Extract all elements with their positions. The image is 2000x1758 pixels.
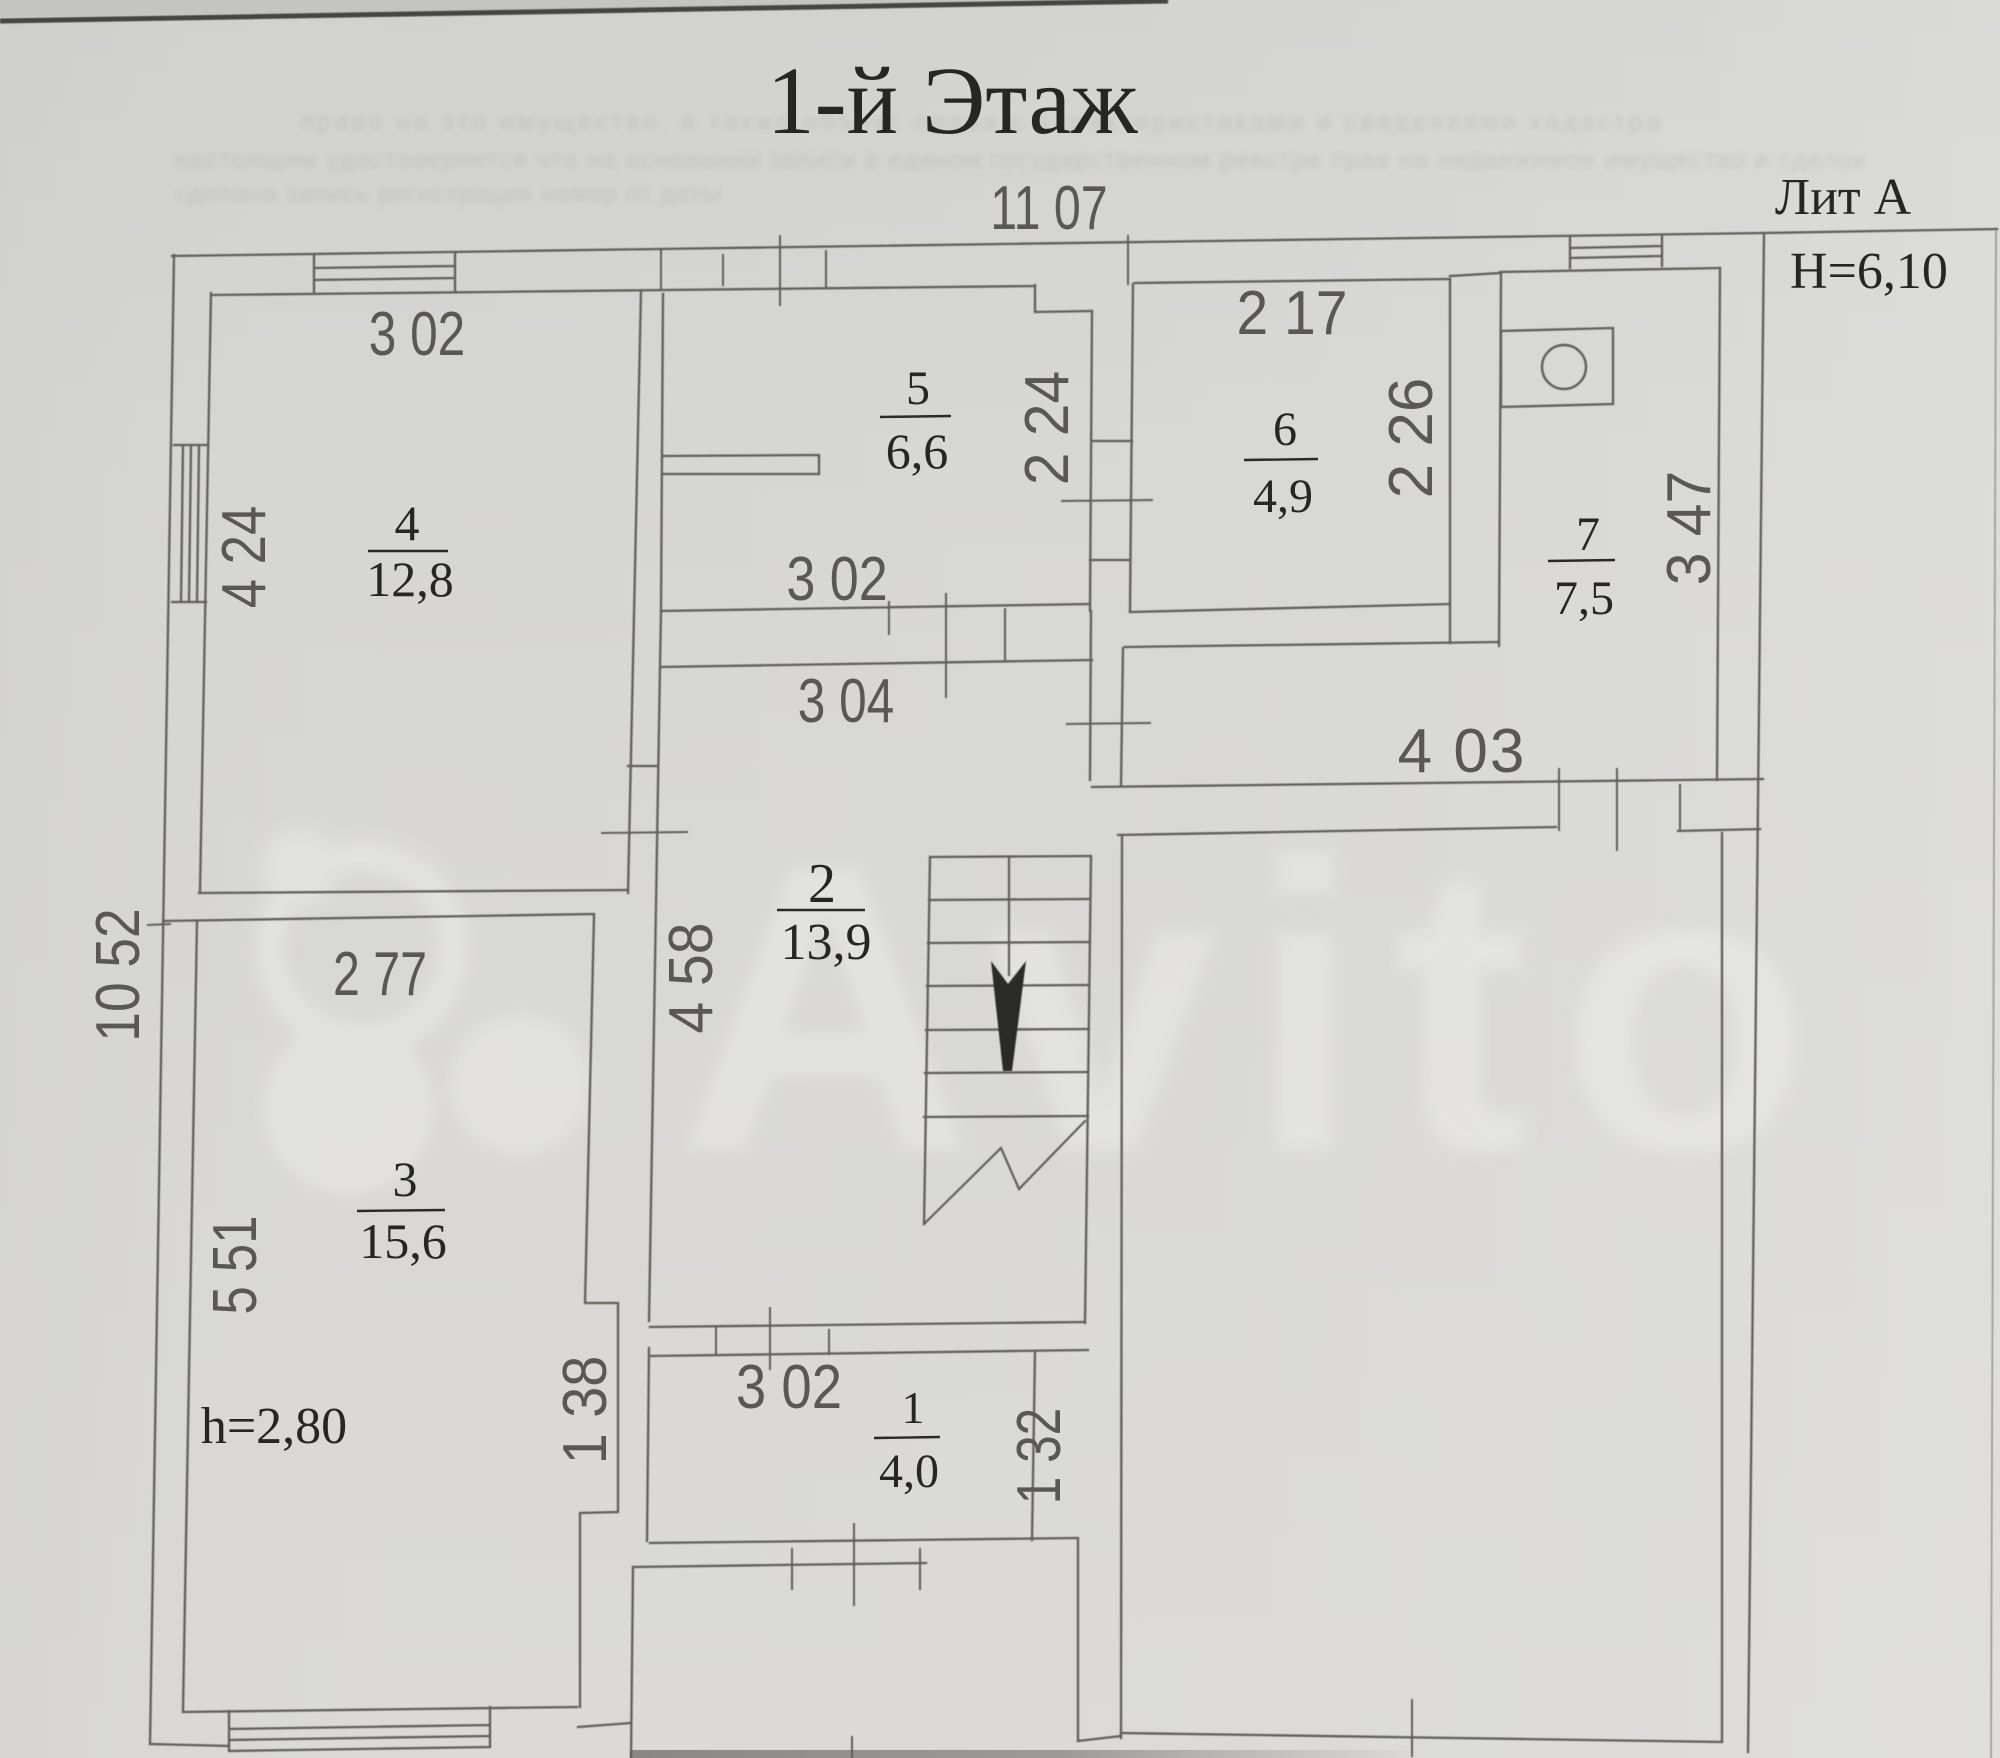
svg-text:7: 7	[1576, 508, 1600, 561]
svg-text:11 07: 11 07	[990, 173, 1107, 242]
svg-text:6,6: 6,6	[886, 423, 949, 479]
svg-text:5 51: 5 51	[201, 1216, 270, 1315]
svg-text:4,0: 4,0	[879, 1445, 939, 1498]
svg-text:4: 4	[395, 495, 420, 551]
svg-text:6: 6	[1273, 403, 1297, 456]
svg-text:1 38: 1 38	[551, 1356, 619, 1465]
svg-text:4,9: 4,9	[1253, 470, 1313, 523]
svg-text:2 77: 2 77	[333, 939, 427, 1008]
svg-text:2: 2	[808, 853, 836, 915]
svg-text:5: 5	[906, 362, 930, 415]
svg-text:4 58: 4 58	[656, 922, 726, 1033]
svg-text:2 26: 2 26	[1377, 378, 1446, 499]
svg-text:2 24: 2 24	[1012, 371, 1082, 486]
svg-text:15,6: 15,6	[359, 1213, 447, 1269]
svg-text:Лит А: Лит А	[1775, 169, 1912, 226]
svg-text:1: 1	[902, 1382, 925, 1433]
svg-text:3 47: 3 47	[1654, 471, 1724, 586]
svg-text:12,8: 12,8	[366, 551, 454, 607]
svg-text:h=2,80: h=2,80	[201, 1398, 347, 1455]
svg-text:1 32: 1 32	[1004, 1408, 1074, 1505]
svg-text:2 17: 2 17	[1236, 278, 1347, 348]
svg-text:4 24: 4 24	[210, 506, 279, 609]
svg-text:3 02: 3 02	[369, 299, 466, 369]
svg-text:3 02: 3 02	[736, 1353, 842, 1422]
svg-text:3 02: 3 02	[786, 545, 887, 614]
svg-text:1-й Этаж: 1-й Этаж	[767, 47, 1138, 154]
svg-text:4 03: 4 03	[1398, 717, 1527, 786]
svg-text:3 04: 3 04	[798, 666, 895, 736]
svg-text:Avito: Avito	[676, 778, 1841, 1238]
svg-text:10 52: 10 52	[84, 908, 153, 1041]
svg-text:3: 3	[393, 1151, 418, 1207]
svg-text:Н=6,10: Н=6,10	[1790, 243, 1948, 300]
svg-text:13,9: 13,9	[781, 914, 872, 971]
svg-text:7,5: 7,5	[1554, 572, 1614, 625]
svg-text:сделана запись регистрации ном: сделана запись регистрации номер от даты	[175, 180, 720, 208]
